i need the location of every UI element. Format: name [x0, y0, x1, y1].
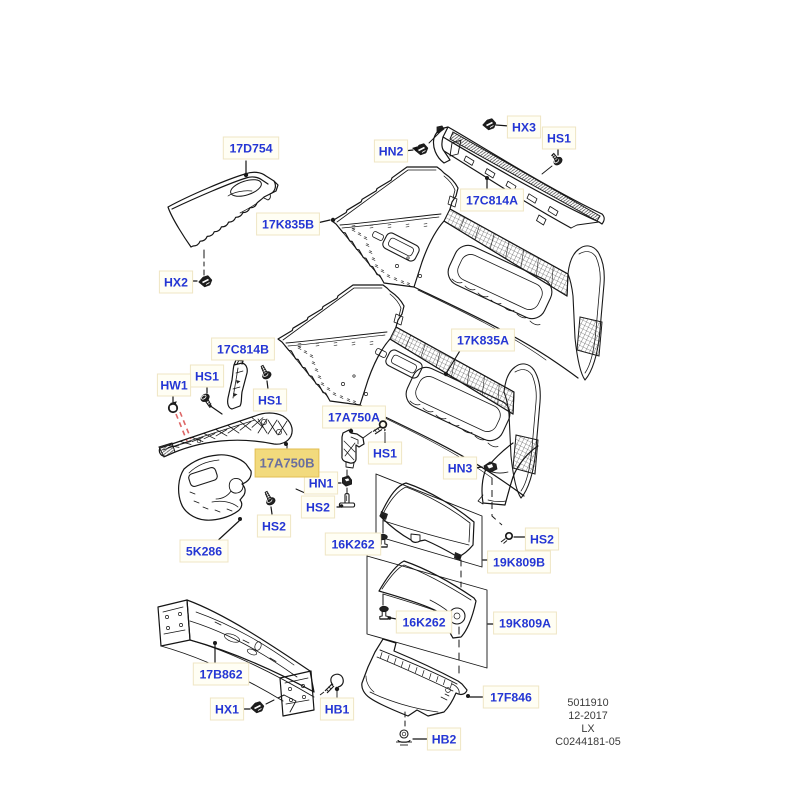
svg-text:HW1: HW1	[160, 378, 187, 392]
svg-text:16K262: 16K262	[331, 537, 374, 551]
svg-text:HB1: HB1	[325, 702, 350, 716]
svg-text:19K809B: 19K809B	[493, 555, 545, 569]
svg-text:HS2: HS2	[530, 532, 554, 546]
svg-text:17K835A: 17K835A	[457, 333, 509, 347]
svg-text:HS1: HS1	[547, 131, 571, 145]
svg-text:HX3: HX3	[512, 120, 536, 134]
svg-text:17F846: 17F846	[490, 690, 532, 704]
svg-text:17K835B: 17K835B	[262, 217, 314, 231]
svg-text:HS2: HS2	[262, 519, 286, 533]
svg-text:HS2: HS2	[306, 500, 330, 514]
svg-text:19K809A: 19K809A	[499, 616, 551, 630]
svg-text:5011910: 5011910	[567, 697, 608, 709]
svg-text:HS1: HS1	[195, 369, 219, 383]
svg-text:HS1: HS1	[258, 393, 282, 407]
svg-text:C0244181-05: C0244181-05	[555, 736, 620, 748]
svg-text:HX2: HX2	[164, 275, 188, 289]
svg-text:LX: LX	[581, 723, 594, 735]
svg-text:17C814A: 17C814A	[466, 193, 518, 207]
svg-text:HX1: HX1	[215, 702, 239, 716]
svg-text:HS1: HS1	[373, 446, 397, 460]
svg-text:17D754: 17D754	[229, 141, 272, 155]
svg-text:17A750B: 17A750B	[260, 456, 315, 471]
svg-text:17C814B: 17C814B	[217, 342, 269, 356]
svg-text:HN1: HN1	[309, 476, 334, 490]
svg-text:17B862: 17B862	[199, 667, 242, 681]
svg-text:HN3: HN3	[448, 461, 473, 475]
svg-text:16K262: 16K262	[402, 615, 445, 629]
svg-text:5K286: 5K286	[186, 544, 222, 558]
svg-text:17A750A: 17A750A	[328, 410, 380, 424]
svg-text:HN2: HN2	[379, 144, 404, 158]
svg-text:12-2017: 12-2017	[568, 710, 608, 722]
svg-text:HB2: HB2	[432, 732, 457, 746]
